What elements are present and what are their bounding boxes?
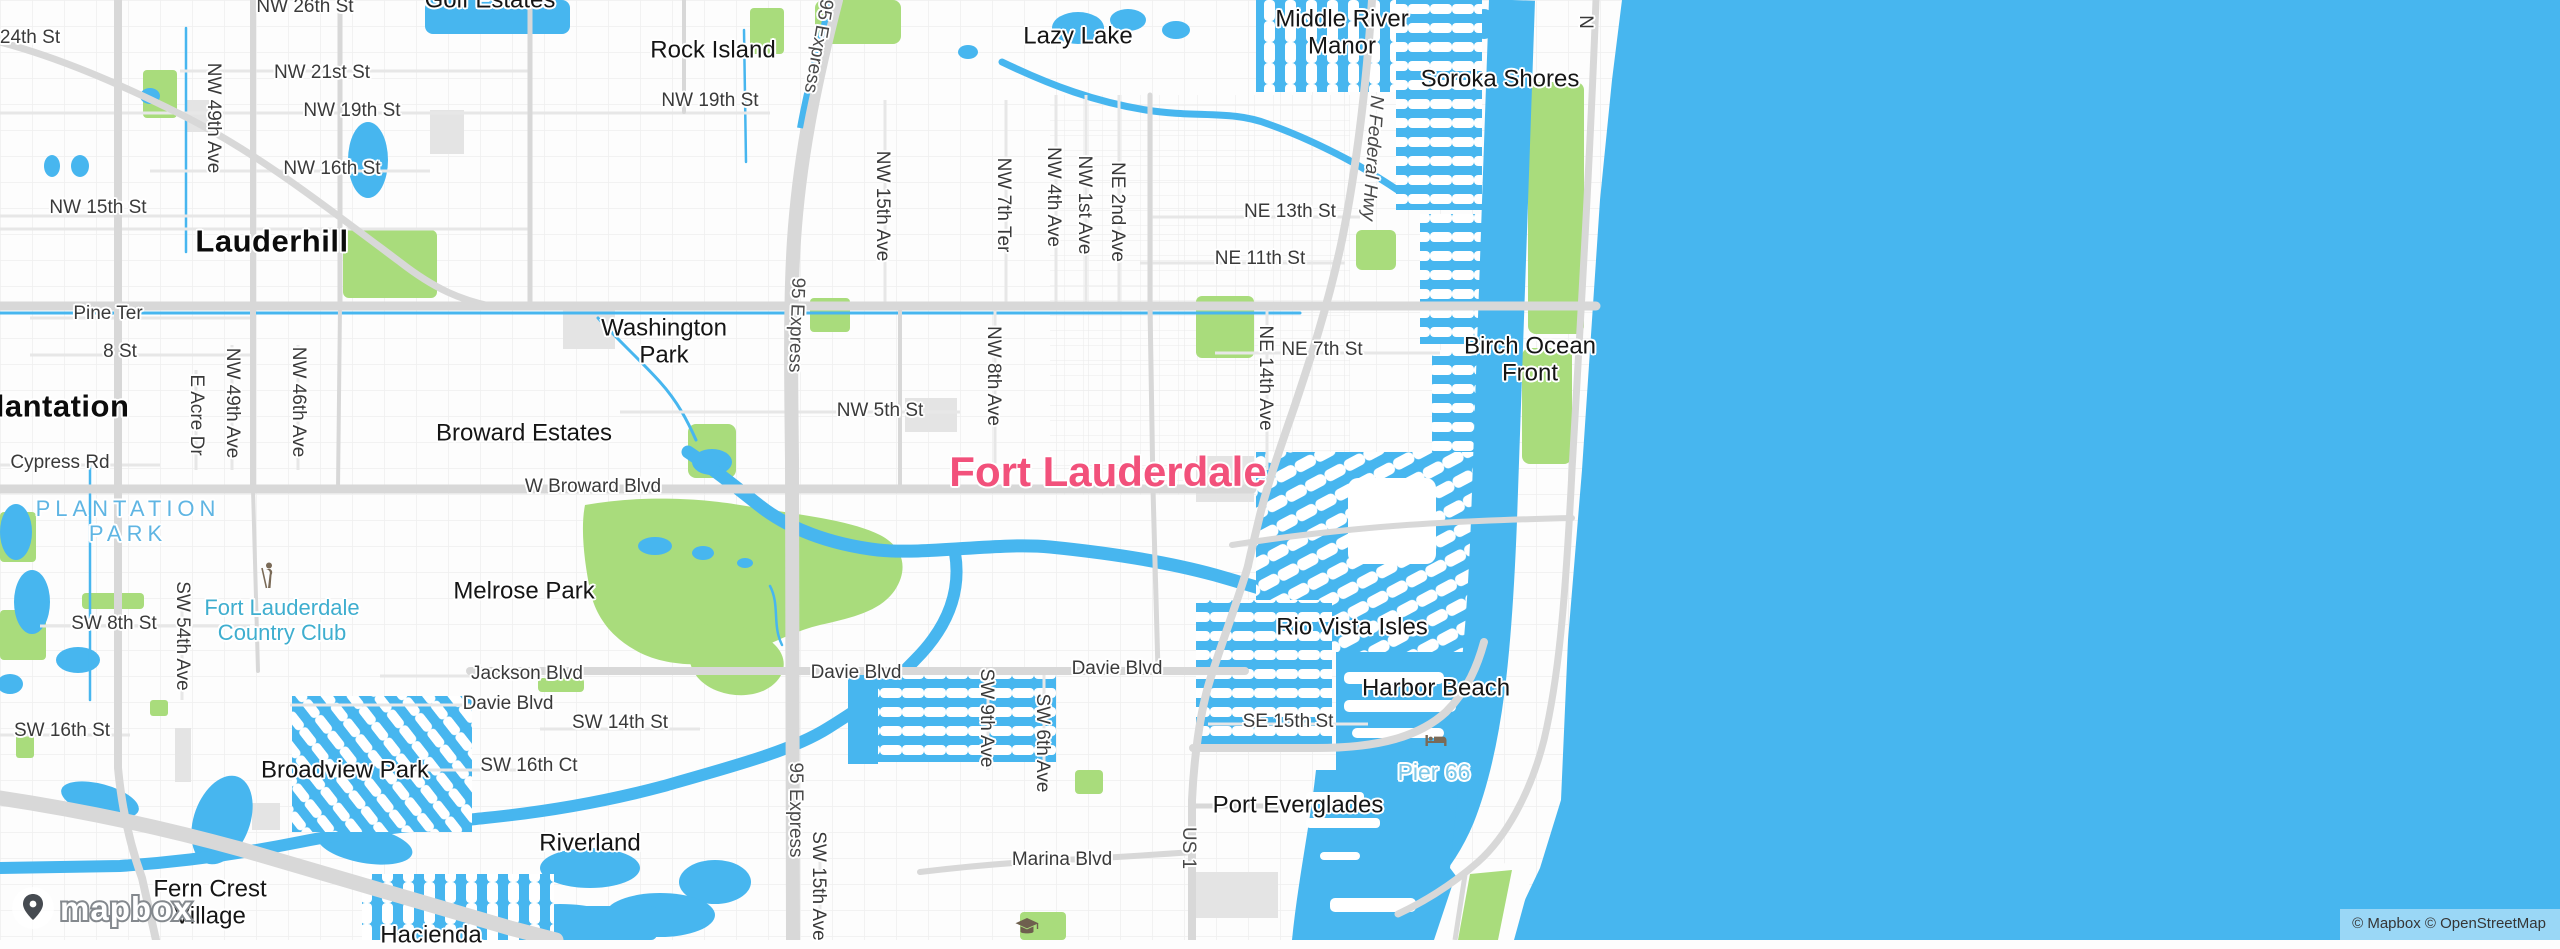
- atlantic-ocean: [1506, 0, 2560, 940]
- mapbox-wordmark[interactable]: mapbox: [60, 890, 193, 927]
- basemap-tiles: [0, 0, 2560, 940]
- map-attribution[interactable]: © Mapbox © OpenStreetMap: [2340, 909, 2560, 940]
- map-canvas[interactable]: LauderhillPlantationFort LauderdaleRock …: [0, 0, 2560, 940]
- mapbox-logo[interactable]: mapbox: [8, 883, 248, 938]
- attribution-text[interactable]: © Mapbox © OpenStreetMap: [2352, 915, 2546, 932]
